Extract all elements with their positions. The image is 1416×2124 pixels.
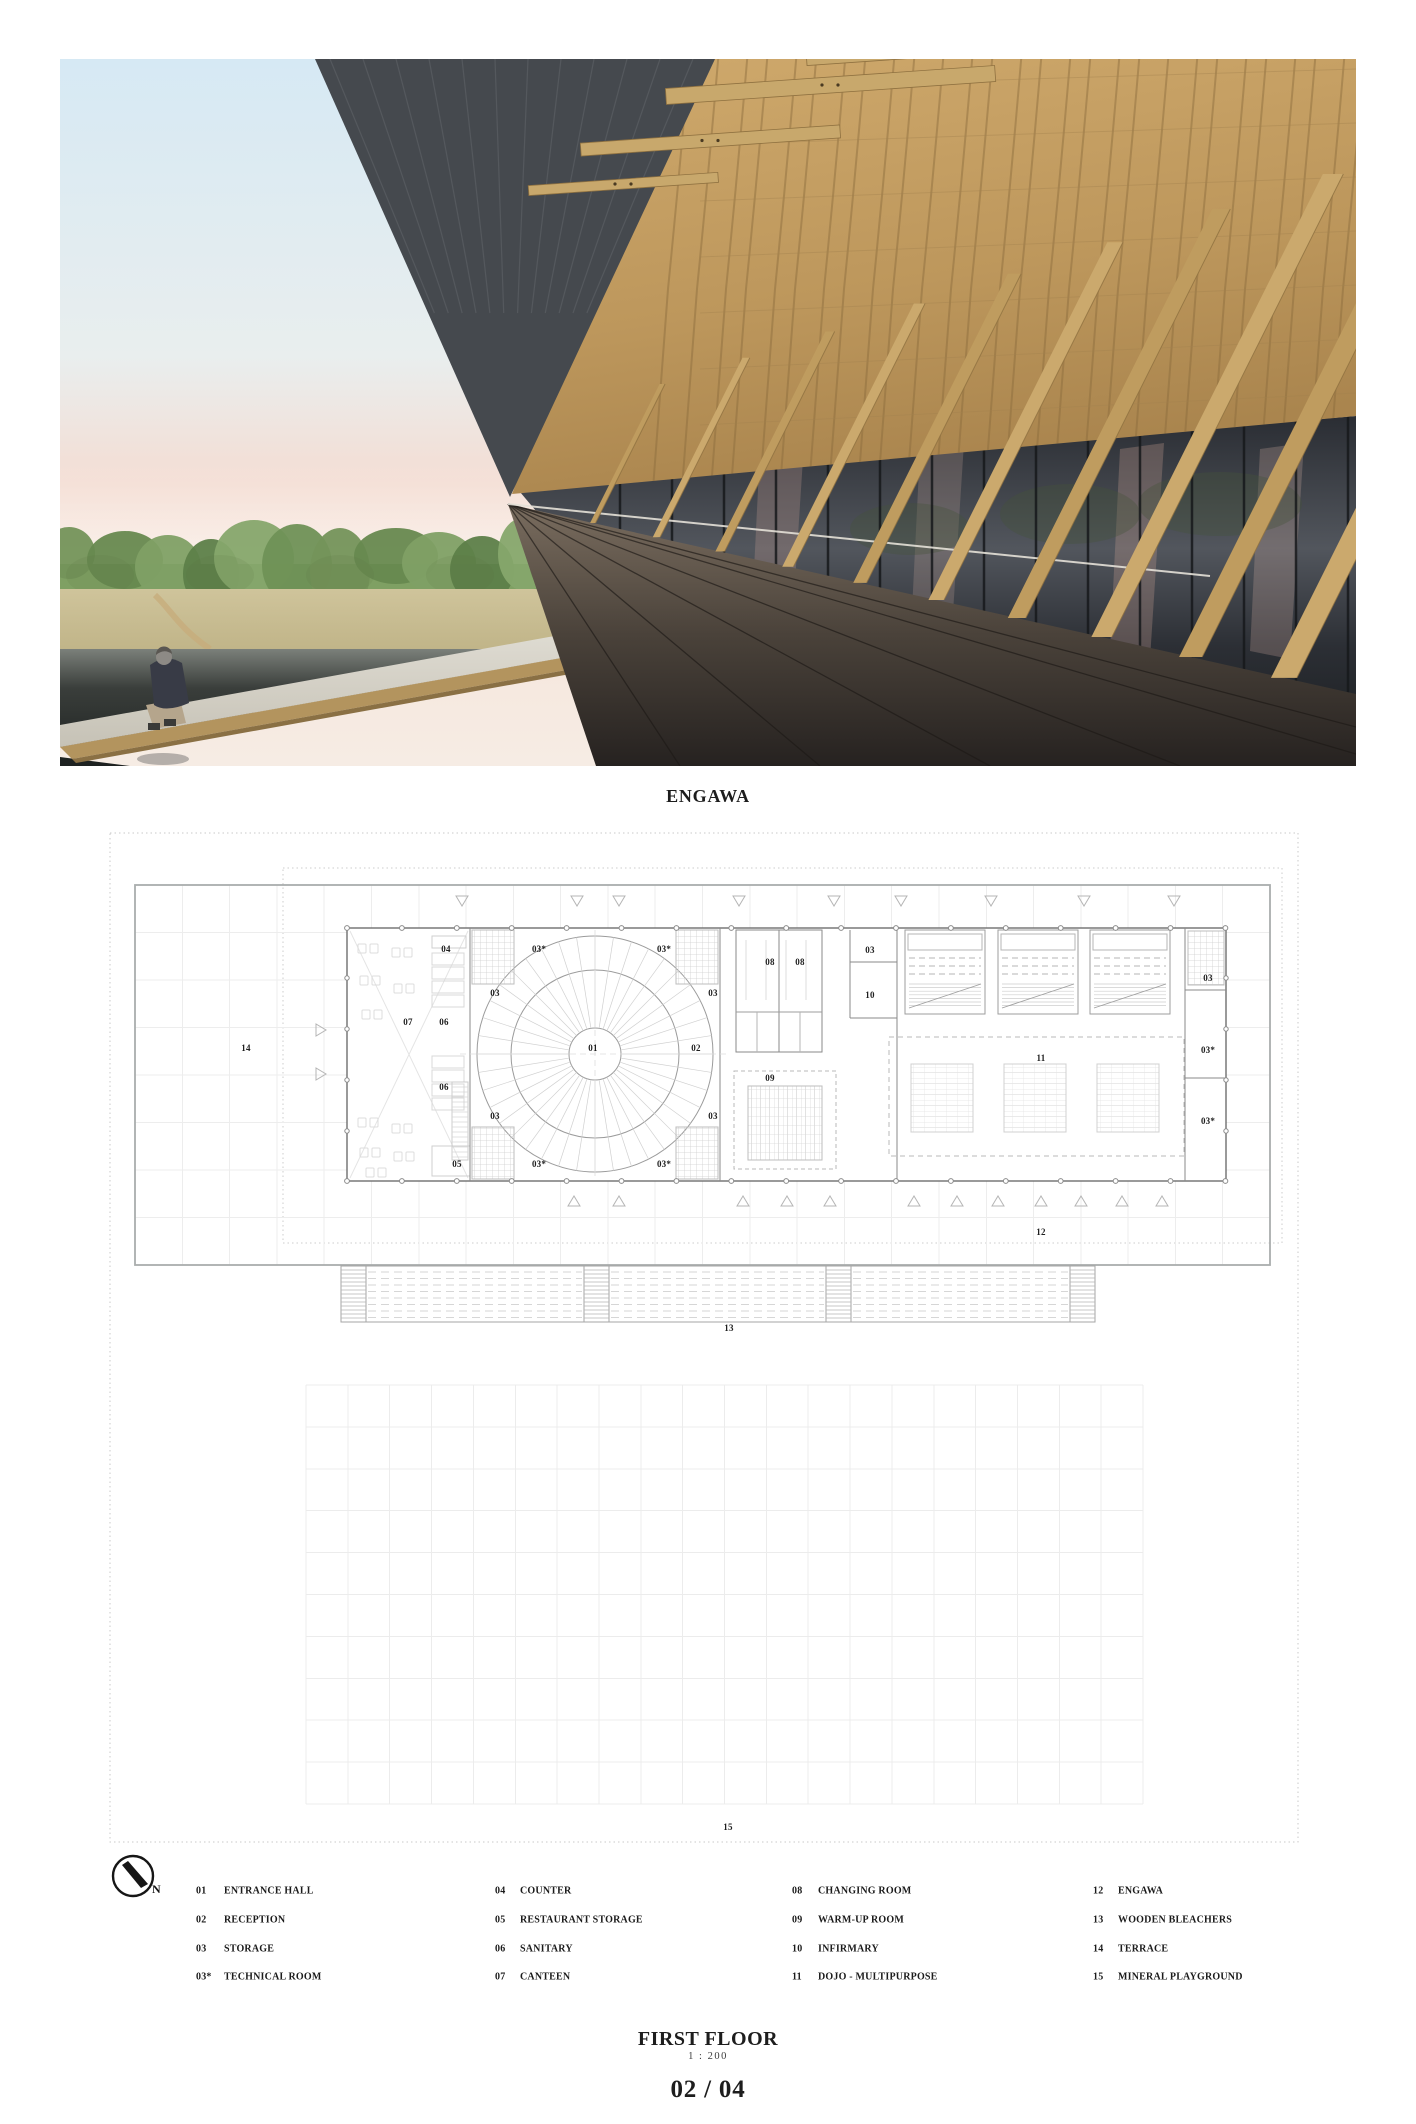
plan-room-number: 09 bbox=[765, 1073, 774, 1083]
legend-number: 03* bbox=[196, 1972, 212, 1983]
presentation-board: ENGAWA 140407060605030303*03*03*03*01020… bbox=[0, 0, 1416, 2124]
legend-number: 09 bbox=[792, 1915, 802, 1926]
legend-number: 01 bbox=[196, 1886, 206, 1897]
legend-label: RECEPTION bbox=[224, 1915, 285, 1926]
legend-label: TECHNICAL ROOM bbox=[224, 1972, 322, 1983]
plan-room-number: 03 bbox=[1203, 973, 1212, 983]
plan-room-number: 03 bbox=[490, 988, 499, 998]
legend-number: 08 bbox=[792, 1886, 802, 1897]
legend-label: CHANGING ROOM bbox=[818, 1886, 911, 1897]
plan-room-number: 04 bbox=[441, 944, 450, 954]
legend-number: 06 bbox=[495, 1944, 505, 1955]
plan-room-number: 15 bbox=[723, 1822, 732, 1832]
plan-room-number: 08 bbox=[795, 957, 804, 967]
legend-label: STORAGE bbox=[224, 1944, 274, 1955]
legend-label: COUNTER bbox=[520, 1886, 571, 1897]
legend-number: 04 bbox=[495, 1886, 505, 1897]
legend-number: 14 bbox=[1093, 1944, 1103, 1955]
legend-label: SANITARY bbox=[520, 1944, 573, 1955]
legend-label: CANTEEN bbox=[520, 1972, 570, 1983]
legend-number: 07 bbox=[495, 1972, 505, 1983]
plan-room-number: 07 bbox=[403, 1017, 412, 1027]
plan-room-number: 03 bbox=[490, 1111, 499, 1121]
plan-room-number: 01 bbox=[588, 1043, 597, 1053]
plan-room-number: 03* bbox=[657, 944, 671, 954]
legend-number: 13 bbox=[1093, 1915, 1103, 1926]
legend-label: ENGAWA bbox=[1118, 1886, 1163, 1897]
legend-number: 05 bbox=[495, 1915, 505, 1926]
floor-plan-drawing bbox=[0, 0, 1416, 2124]
plan-room-number: 03 bbox=[708, 1111, 717, 1121]
legend-number: 15 bbox=[1093, 1972, 1103, 1983]
plan-room-number: 03 bbox=[708, 988, 717, 998]
plan-room-number: 10 bbox=[865, 990, 874, 1000]
legend-label: WOODEN BLEACHERS bbox=[1118, 1915, 1232, 1926]
plan-scale: 1 : 200 bbox=[0, 2051, 1416, 2062]
plan-room-number: 08 bbox=[765, 957, 774, 967]
plan-room-number: 12 bbox=[1036, 1227, 1045, 1237]
legend-label: ENTRANCE HALL bbox=[224, 1886, 314, 1897]
plan-room-number: 03* bbox=[532, 944, 546, 954]
legend-number: 02 bbox=[196, 1915, 206, 1926]
legend-label: RESTAURANT STORAGE bbox=[520, 1915, 643, 1926]
page-number: 02 / 04 bbox=[0, 2076, 1416, 2104]
plan-room-number: 02 bbox=[691, 1043, 700, 1053]
plan-room-number: 03* bbox=[657, 1159, 671, 1169]
plan-title: FIRST FLOOR bbox=[0, 2028, 1416, 2051]
legend-label: TERRACE bbox=[1118, 1944, 1168, 1955]
plan-room-number: 14 bbox=[241, 1043, 250, 1053]
legend-number: 11 bbox=[792, 1972, 802, 1983]
plan-room-number: 03 bbox=[865, 945, 874, 955]
legend-label: DOJO - MULTIPURPOSE bbox=[818, 1972, 938, 1983]
legend-number: 03 bbox=[196, 1944, 206, 1955]
plan-room-number: 03* bbox=[1201, 1116, 1215, 1126]
legend-label: MINERAL PLAYGROUND bbox=[1118, 1972, 1243, 1983]
legend-label: WARM-UP ROOM bbox=[818, 1915, 904, 1926]
legend-number: 12 bbox=[1093, 1886, 1103, 1897]
legend-number: 10 bbox=[792, 1944, 802, 1955]
plan-room-number: 06 bbox=[439, 1082, 448, 1092]
plan-room-number: 03* bbox=[532, 1159, 546, 1169]
plan-room-number: 05 bbox=[452, 1159, 461, 1169]
legend-label: INFIRMARY bbox=[818, 1944, 879, 1955]
plan-room-number: 03* bbox=[1201, 1045, 1215, 1055]
plan-room-number: 13 bbox=[724, 1323, 733, 1333]
plan-room-number: 11 bbox=[1037, 1053, 1046, 1063]
plan-room-number: 06 bbox=[439, 1017, 448, 1027]
north-label: N bbox=[152, 1882, 161, 1897]
